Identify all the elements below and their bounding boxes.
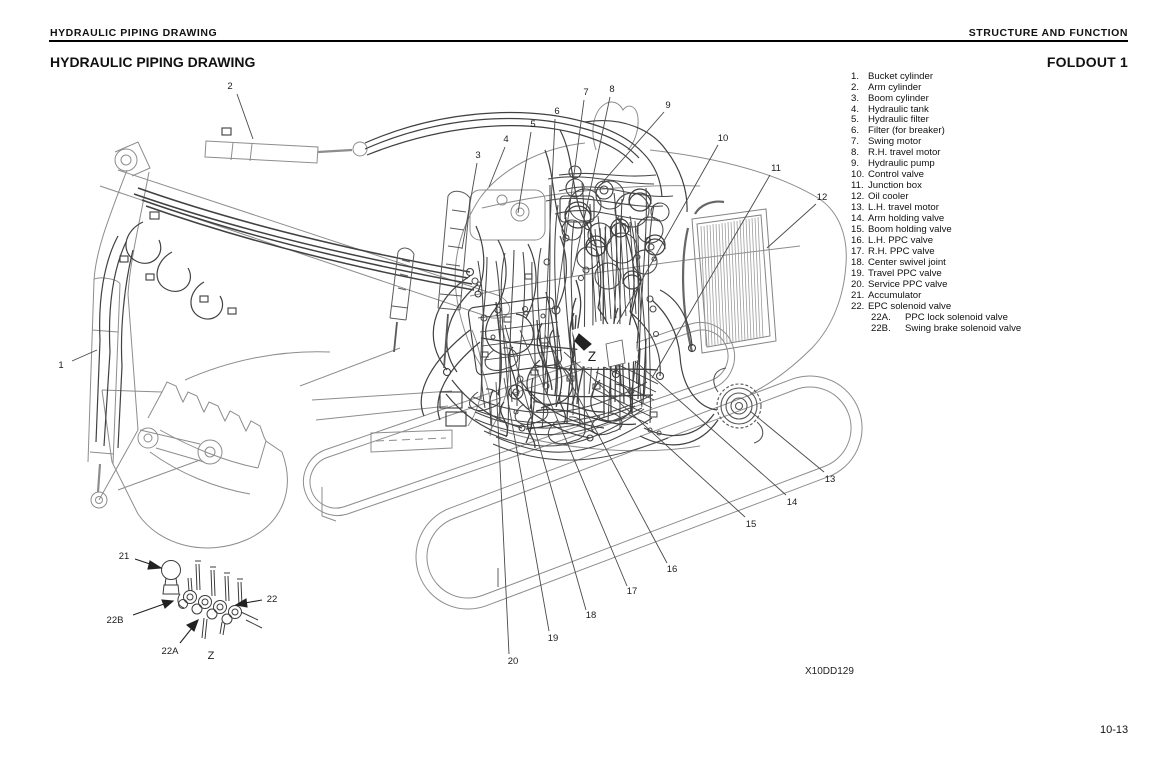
svg-text:20: 20 [508, 656, 519, 667]
svg-text:19: 19 [548, 633, 559, 644]
svg-text:3: 3 [475, 150, 480, 161]
svg-text:12: 12 [817, 192, 828, 203]
svg-text:1: 1 [58, 360, 63, 371]
svg-text:2: 2 [227, 81, 232, 92]
svg-text:16: 16 [667, 564, 678, 575]
svg-text:10: 10 [718, 133, 729, 144]
svg-text:17: 17 [627, 586, 638, 597]
svg-text:6: 6 [554, 106, 559, 117]
svg-text:22: 22 [267, 594, 278, 605]
svg-text:21: 21 [119, 551, 130, 562]
svg-text:7: 7 [583, 87, 588, 98]
svg-text:22B: 22B [107, 615, 124, 626]
svg-text:5: 5 [530, 119, 535, 130]
svg-text:4: 4 [503, 134, 508, 145]
svg-text:11: 11 [771, 163, 781, 174]
svg-text:13: 13 [825, 474, 836, 485]
svg-text:18: 18 [586, 610, 597, 621]
svg-text:Z: Z [588, 349, 596, 364]
svg-text:9: 9 [665, 100, 670, 111]
svg-text:15: 15 [746, 519, 757, 530]
svg-text:14: 14 [787, 497, 798, 508]
svg-text:Z: Z [208, 650, 215, 662]
svg-text:8: 8 [609, 84, 614, 95]
svg-text:22A: 22A [162, 646, 180, 657]
